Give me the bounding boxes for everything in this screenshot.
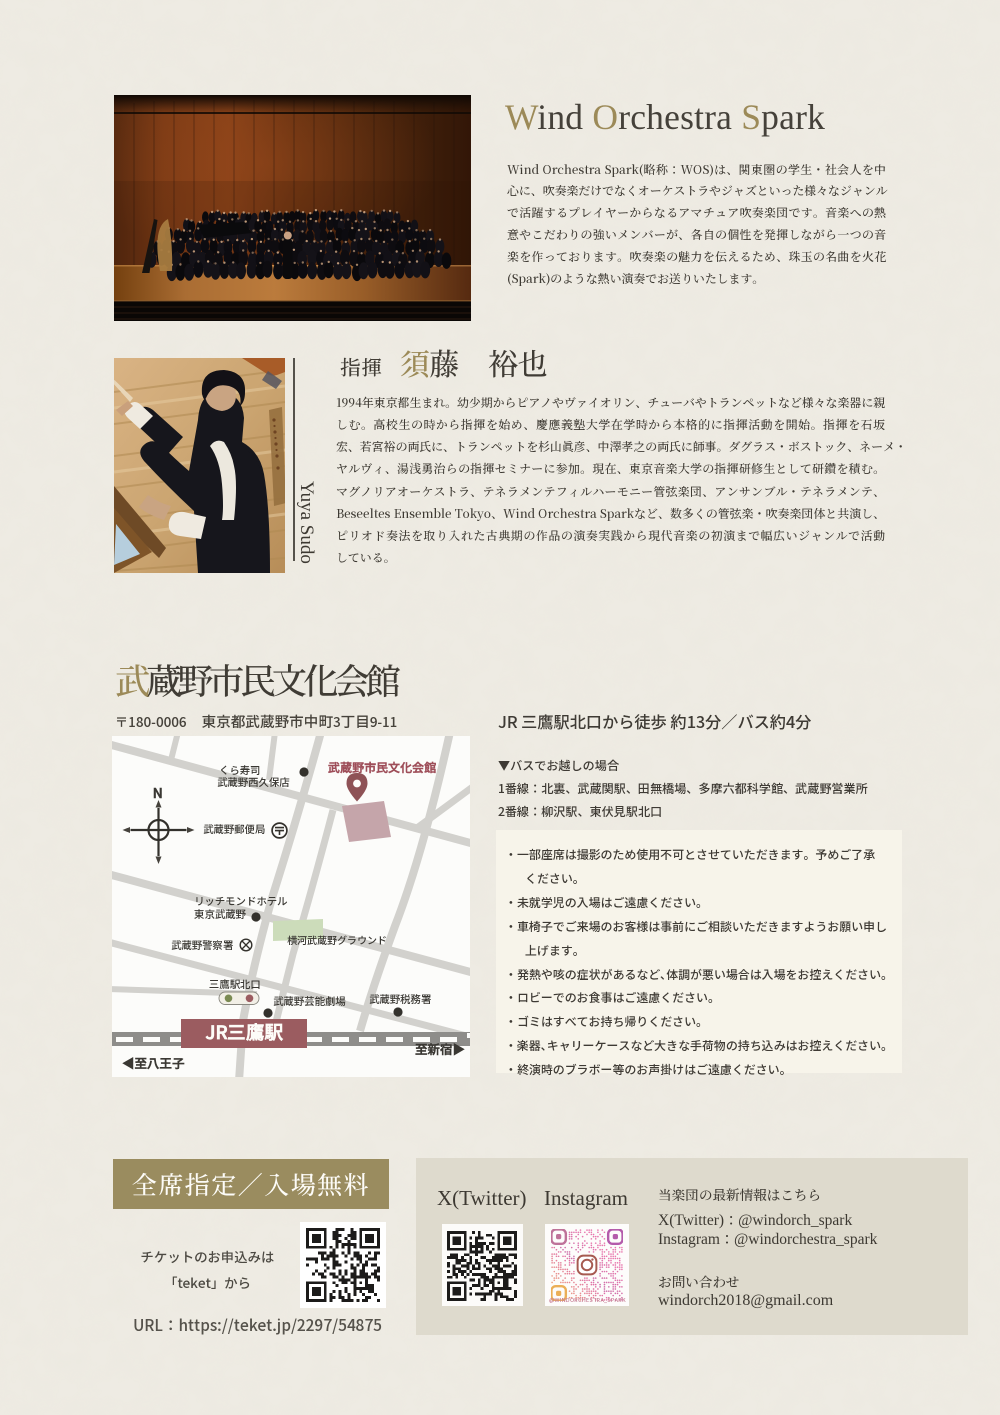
svg-text:武蔵野警察署: 武蔵野警察署 [171, 937, 233, 952]
svg-text:武蔵野税務署: 武蔵野税務署 [369, 991, 431, 1006]
svg-text:◀至八王子: ◀至八王子 [122, 1053, 185, 1072]
svg-text:横河武蔵野グラウンド: 横河武蔵野グラウンド [287, 932, 387, 947]
svg-text:武蔵野市民文化会館: 武蔵野市民文化会館 [328, 759, 436, 776]
svg-text:N: N [153, 782, 163, 802]
svg-text:至新宿▶: 至新宿▶ [415, 1039, 466, 1058]
svg-text:三鷹駅北口: 三鷹駅北口 [209, 976, 261, 991]
svg-text:東京武蔵野: 東京武蔵野 [194, 906, 247, 921]
svg-text:武蔵野郵便局: 武蔵野郵便局 [203, 821, 265, 836]
svg-text:JR三鷹駅: JR三鷹駅 [204, 1019, 283, 1045]
svg-text:武蔵野西久保店: 武蔵野西久保店 [217, 774, 290, 789]
svg-text:武蔵野芸能劇場: 武蔵野芸能劇場 [273, 993, 346, 1008]
